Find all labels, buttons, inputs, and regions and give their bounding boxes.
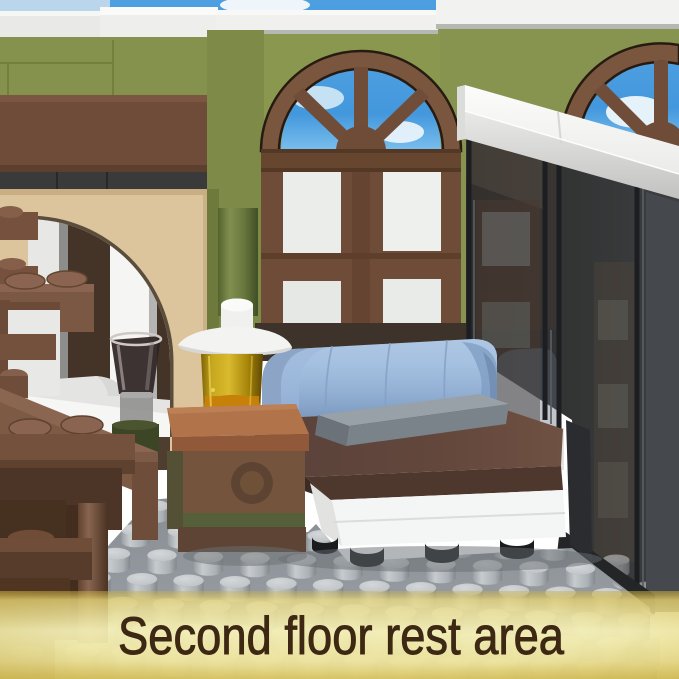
svg-text:Second floor rest area: Second floor rest area (118, 607, 564, 666)
